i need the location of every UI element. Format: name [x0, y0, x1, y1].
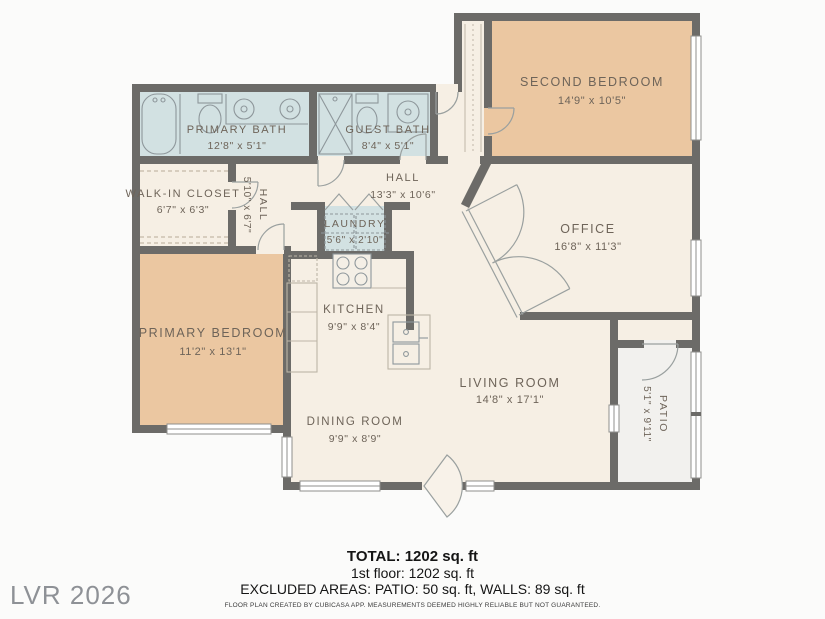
watermark: LVR 2026: [10, 580, 132, 611]
room-name: LIVING ROOM: [460, 376, 561, 390]
room-dims: 6'7" x 6'3": [157, 204, 210, 216]
room-name: DINING ROOM: [307, 416, 404, 428]
room-dims: 13'3" x 10'6": [370, 189, 435, 201]
floor-plan-page: PRIMARY BATH 12'8" x 5'1" GUEST BATH 8'4…: [0, 0, 825, 619]
room-dims: 16'8" x 11'3": [554, 241, 621, 253]
room-name: SECOND BEDROOM: [520, 75, 664, 89]
room-dims: 5'10" x 6'7": [241, 177, 252, 233]
room-name: PATIO: [657, 395, 669, 433]
total-area: TOTAL: 1202 sq. ft: [0, 548, 825, 565]
room-name: LAUNDRY: [324, 218, 385, 230]
room-name: WALK-IN CLOSET: [126, 188, 241, 200]
room-dims: 14'8" x 17'1": [476, 394, 544, 406]
room-dims: 14'9" x 10'5": [558, 95, 626, 107]
room-name: HALL: [386, 172, 420, 184]
room-fill-second-bedroom: [488, 21, 696, 160]
room-dims: 12'8" x 5'1": [208, 140, 267, 152]
room-dims: 11'2" x 13'1": [179, 346, 246, 358]
room-name: PRIMARY BATH: [187, 124, 288, 136]
floor-area: 1st floor: 1202 sq. ft: [0, 565, 825, 581]
room-fill-patio: [614, 344, 696, 486]
room-name: GUEST BATH: [345, 124, 430, 136]
room-dims: 9'9" x 8'4": [328, 321, 381, 333]
room-name: OFFICE: [560, 222, 615, 236]
room-dims: 9'9" x 8'9": [329, 433, 382, 445]
floor-plan-drawing: PRIMARY BATH 12'8" x 5'1" GUEST BATH 8'4…: [0, 0, 825, 619]
room-name: KITCHEN: [323, 304, 385, 316]
room-name: HALL: [257, 189, 269, 222]
room-dims: 5'1" x 9'11": [641, 386, 652, 442]
room-dims: 5'6" x 2'10": [327, 235, 383, 246]
room-dims: 8'4" x 5'1": [362, 140, 415, 152]
room-name: PRIMARY BEDROOM: [139, 326, 288, 340]
